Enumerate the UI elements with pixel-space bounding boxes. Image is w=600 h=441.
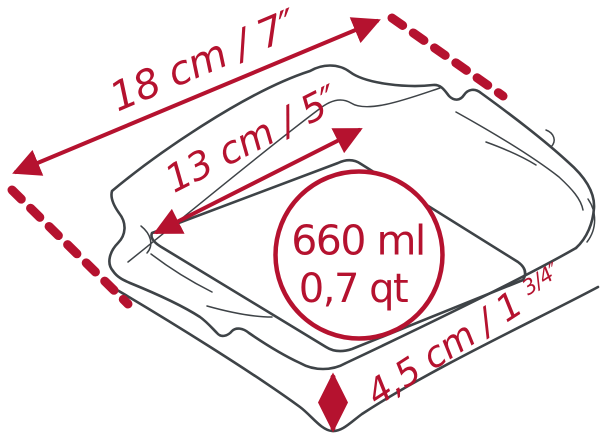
dimension-diagram: 18 cm / 7″ 13 cm / 5″ 4,5 cm / 1 3/4″ 66… bbox=[0, 0, 600, 441]
right-wall-accent bbox=[486, 142, 536, 165]
dish-rim-inner-lip-right bbox=[456, 112, 583, 210]
outer-width-extension-right-dashed bbox=[392, 18, 503, 96]
outer-width-extension-left-dashed bbox=[12, 190, 128, 304]
volume-milliliters-label: 660 ml bbox=[291, 221, 425, 262]
left-handle-hook bbox=[141, 226, 151, 253]
volume-quarts-label: 0,7 qt bbox=[299, 269, 407, 309]
